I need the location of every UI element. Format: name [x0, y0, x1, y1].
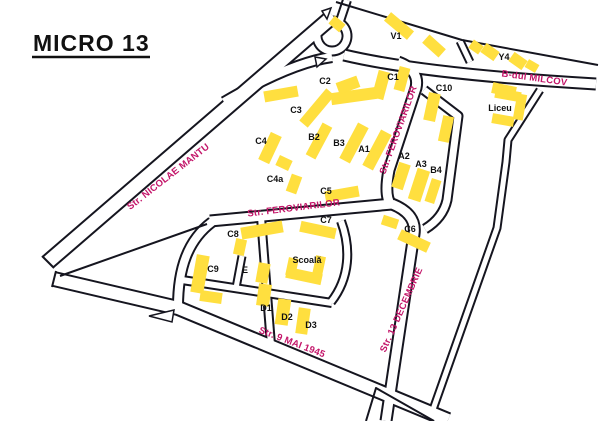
- block-label-Scoală: Scoală: [292, 255, 322, 265]
- block-label-C7: C7: [320, 215, 332, 225]
- building-block-28: [381, 215, 399, 229]
- street-label-3: Str. FEROVIARILOR: [378, 85, 420, 176]
- block-label-Liceu: Liceu: [488, 103, 512, 113]
- block-label-C4a: C4a: [267, 174, 285, 184]
- block-label-C5: C5: [320, 186, 332, 196]
- building-block-3: [422, 35, 446, 58]
- block-label-A3: A3: [415, 159, 427, 169]
- block-label-C3: C3: [290, 105, 302, 115]
- building-block-25: [425, 178, 442, 204]
- block-label-B3: B3: [333, 138, 345, 148]
- block-label-C6: C6: [404, 224, 416, 234]
- block-label-C2: C2: [319, 76, 331, 86]
- block-label-C4: C4: [255, 136, 267, 146]
- building-block-31: [233, 238, 247, 256]
- block-label-E: E: [242, 265, 248, 275]
- building-block-8: [263, 86, 298, 103]
- block-label-Y4: Y4: [498, 52, 509, 62]
- building-block-6: [508, 52, 527, 70]
- block-label-B4: B4: [430, 165, 442, 175]
- block-label-D3: D3: [305, 320, 317, 330]
- block-label-A2: A2: [398, 151, 410, 161]
- block-label-V1: V1: [390, 31, 401, 41]
- block-label-C10: C10: [436, 83, 453, 93]
- building-block-16: [299, 88, 334, 127]
- building-block-33: [199, 290, 222, 304]
- block-label-C1: C1: [387, 72, 399, 82]
- block-label-C9: C9: [207, 264, 219, 274]
- block-label-B2: B2: [308, 132, 320, 142]
- map-page: V1Y4C1C2C3C10C4C4aB2B3A1A2A3B4C5C6C7C8C9…: [0, 0, 600, 421]
- block-label-D1: D1: [260, 303, 272, 313]
- micro13-map: V1Y4C1C2C3C10C4C4aB2B3A1A2A3B4C5C6C7C8C9…: [0, 0, 600, 421]
- page-title: MICRO 13: [33, 30, 150, 56]
- block-label-D2: D2: [281, 312, 293, 322]
- block-label-C8: C8: [227, 229, 239, 239]
- building-block-43: [491, 113, 514, 127]
- building-block-9: [330, 87, 377, 105]
- building-block-18: [275, 155, 292, 171]
- block-label-A1: A1: [358, 144, 370, 154]
- building-block-19: [286, 174, 302, 195]
